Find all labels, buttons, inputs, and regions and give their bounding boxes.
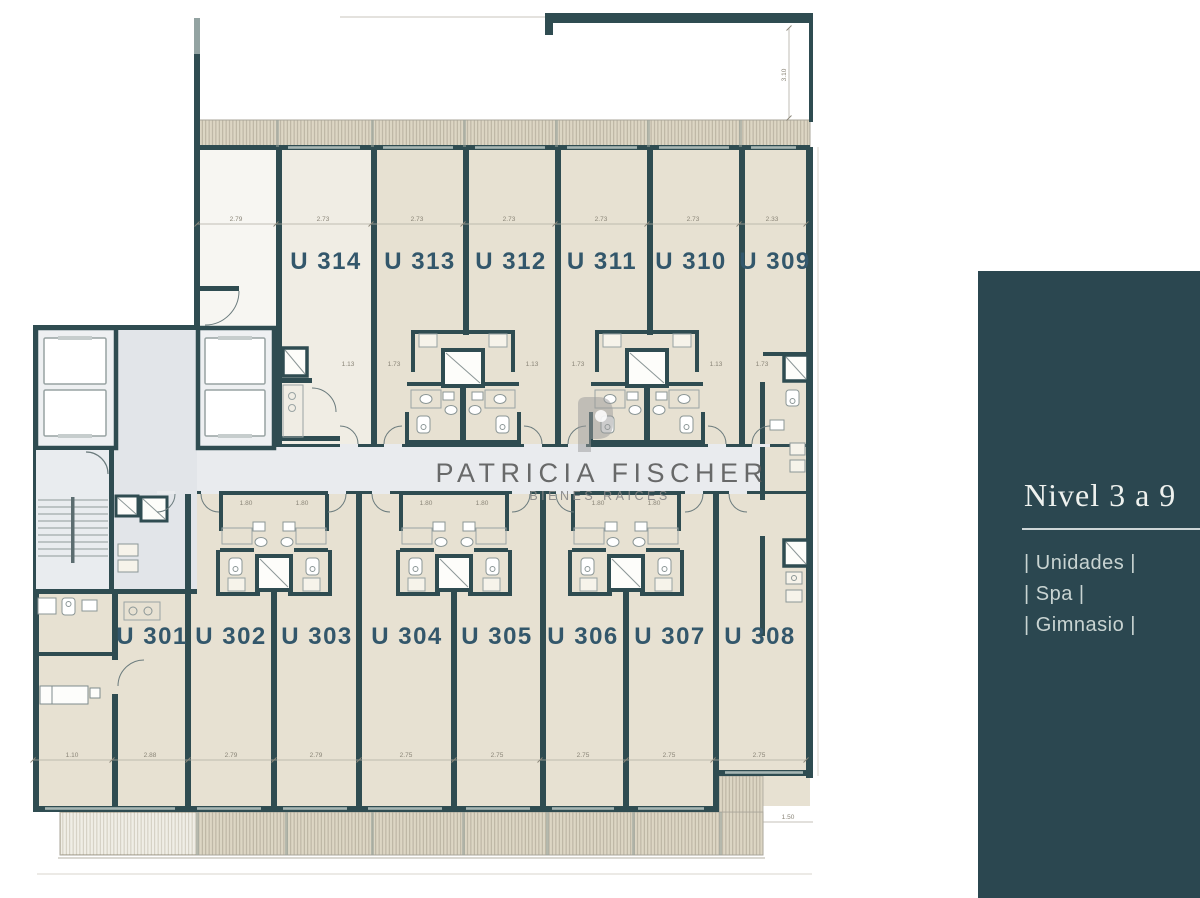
- elevator-bank-left: [36, 328, 116, 448]
- dim-label: 2.73: [411, 216, 424, 223]
- dim-label: 2.73: [317, 216, 330, 223]
- dim-label: 2.75: [753, 752, 766, 759]
- amenity-spa: | Spa |: [1024, 579, 1200, 610]
- amenity-gimnasio: | Gimnasio |: [1024, 610, 1200, 641]
- dim-label: 2.73: [595, 216, 608, 223]
- unit-label-u311: U 311: [567, 248, 637, 275]
- dim-label: 1.80: [420, 500, 433, 507]
- unit-label-u306: U 306: [547, 623, 619, 650]
- unit-label-u302: U 302: [195, 623, 267, 650]
- panel-divider: [1022, 528, 1200, 530]
- dim-label: 1.80: [476, 500, 489, 507]
- unit-label-u309: U 309: [739, 248, 811, 275]
- dim-label: 2.88: [144, 752, 157, 759]
- dim-label: 2.73: [503, 216, 516, 223]
- unit-label-u308: U 308: [724, 623, 796, 650]
- dim-label: 1.10: [66, 752, 79, 759]
- dim-label: 1.13: [710, 361, 723, 368]
- staircase: [36, 450, 114, 589]
- dim-label: 1.73: [388, 361, 401, 368]
- pf-monogram-notch: [595, 410, 607, 422]
- dim-label: 2.79: [225, 752, 238, 759]
- dim-label: 2.75: [663, 752, 676, 759]
- dim-label: 1.73: [756, 361, 769, 368]
- dim-label: 1.73: [572, 361, 585, 368]
- dim-label: 3.10: [781, 68, 788, 81]
- unit-label-u310: U 310: [655, 248, 727, 275]
- dim-label: 1.13: [342, 361, 355, 368]
- dim-label: 2.79: [230, 216, 243, 223]
- unit-label-u313: U 313: [384, 248, 456, 275]
- level-info-panel: Nivel 3 a 9 | Unidades | | Spa | | Gimna…: [978, 271, 1200, 898]
- dim-label: 2.75: [400, 752, 413, 759]
- dim-label: 2.79: [310, 752, 323, 759]
- watermark-brand-name: PATRICIA FISCHER: [435, 458, 768, 488]
- dim-label: 2.75: [577, 752, 590, 759]
- dim-label: 1.80: [296, 500, 309, 507]
- brochure-page: 2.792.732.732.732.732.732.331.102.882.79…: [0, 0, 1200, 898]
- unit-label-u301: U 301: [116, 623, 188, 650]
- unit-label-u303: U 303: [281, 623, 353, 650]
- elevator-bank-right: [198, 328, 274, 448]
- amenity-unidades: | Unidades |: [1024, 548, 1200, 579]
- unit-label-u304: U 304: [371, 623, 443, 650]
- amenities-list: | Unidades | | Spa | | Gimnasio |: [1024, 548, 1200, 641]
- dim-label: 1.50: [782, 814, 795, 821]
- dim-label: 2.75: [491, 752, 504, 759]
- watermark-tagline: BIENES RAICES: [529, 489, 670, 503]
- unit-label-u312: U 312: [475, 248, 547, 275]
- dim-label: 1.13: [526, 361, 539, 368]
- unit-label-u305: U 305: [461, 623, 533, 650]
- unit-label-u307: U 307: [634, 623, 706, 650]
- unit-label-u314: U 314: [290, 248, 362, 275]
- level-title: Nivel 3 a 9: [1024, 477, 1200, 514]
- dim-label: 2.33: [766, 216, 779, 223]
- dim-label: 2.73: [687, 216, 700, 223]
- dim-label: 1.80: [240, 500, 253, 507]
